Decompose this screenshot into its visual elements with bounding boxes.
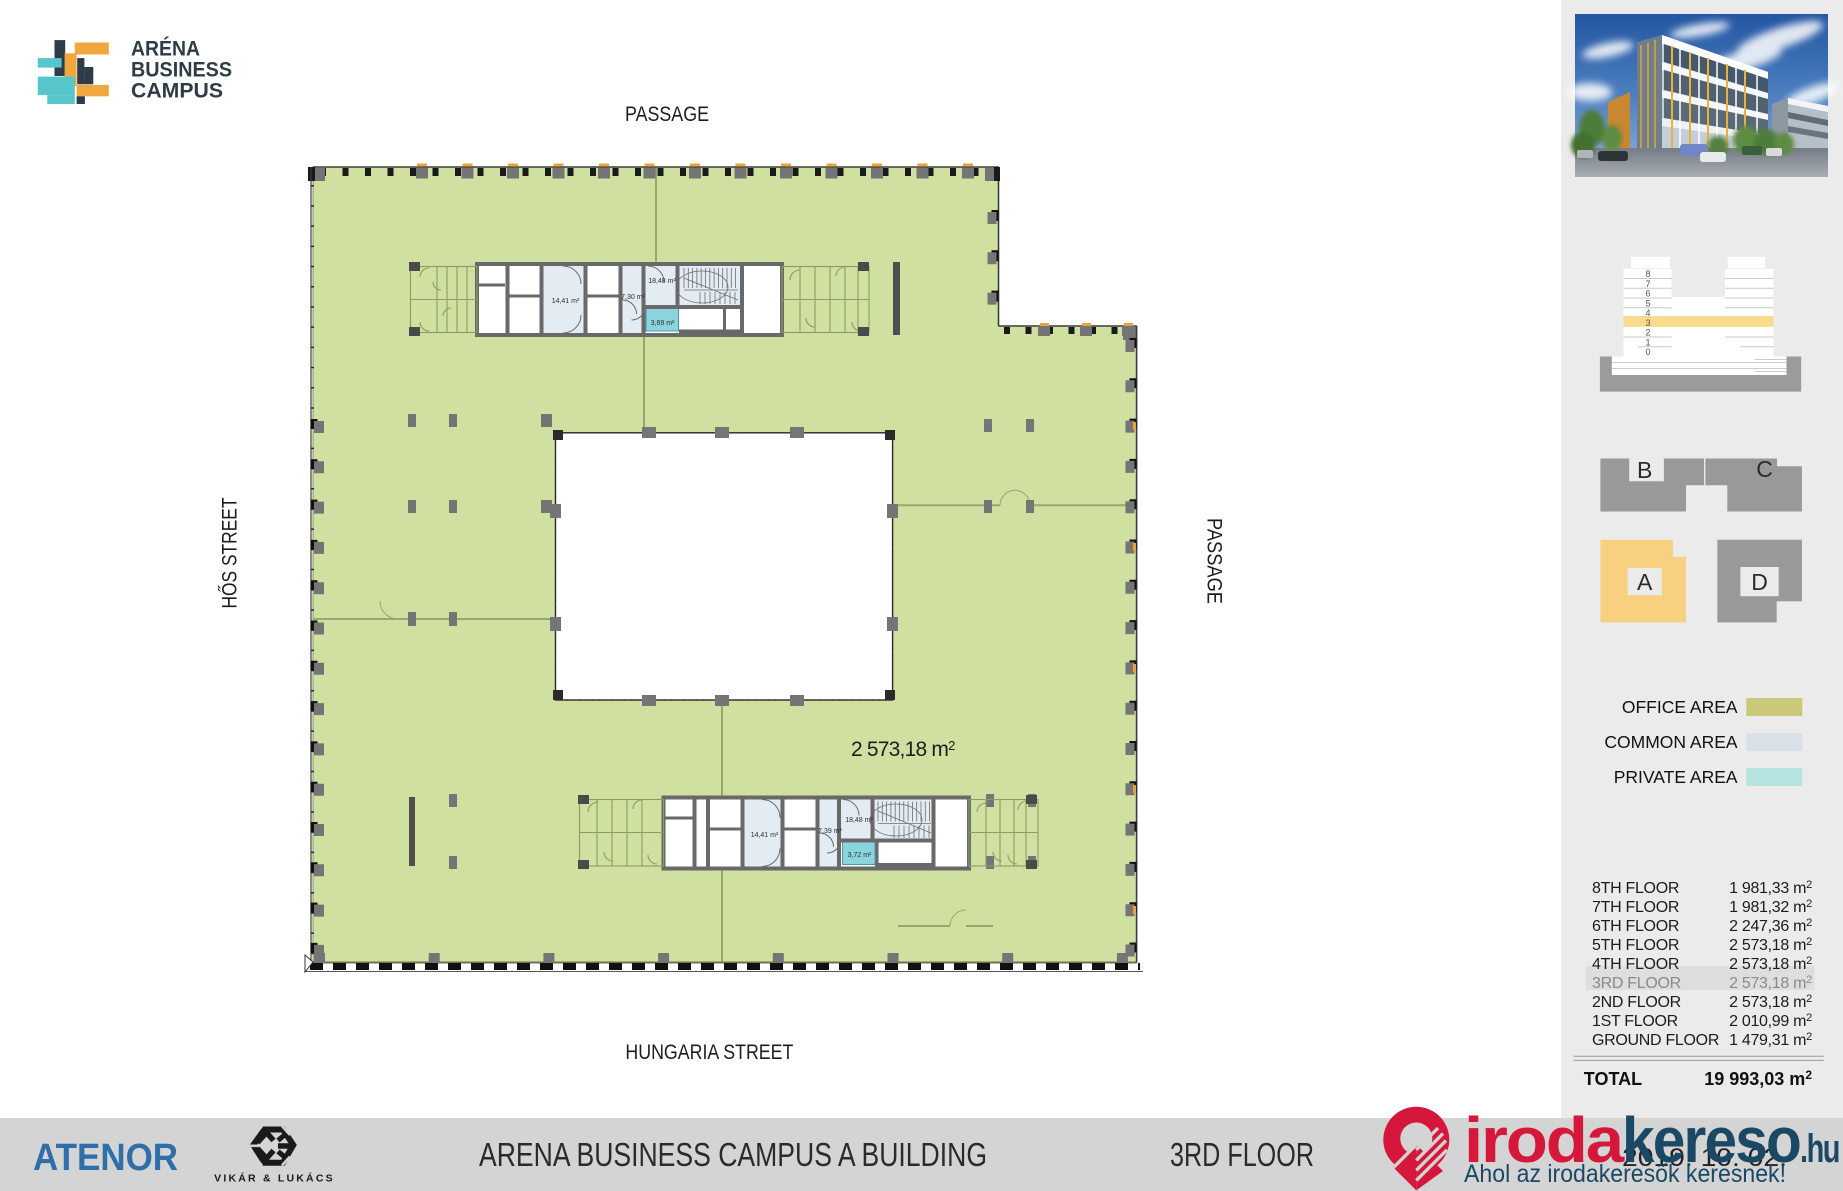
svg-text:2 573,18 m2: 2 573,18 m2: [1729, 955, 1812, 973]
svg-text:HUNGARIA STREET: HUNGARIA STREET: [625, 1041, 793, 1064]
svg-text:ATENOR: ATENOR: [33, 1137, 178, 1179]
svg-text:8: 8: [1645, 269, 1650, 279]
svg-text:3: 3: [1645, 318, 1650, 328]
svg-text:19 993,03 m2: 19 993,03 m2: [1704, 1068, 1812, 1089]
svg-text:3RD FLOOR: 3RD FLOOR: [1170, 1136, 1314, 1173]
svg-text:B: B: [1637, 457, 1652, 483]
svg-text:7,39 m²: 7,39 m²: [818, 828, 842, 835]
svg-text:3,72 m²: 3,72 m²: [848, 852, 872, 859]
svg-text:VIKÁR & LUKÁCS: VIKÁR & LUKÁCS: [214, 1172, 335, 1185]
svg-text:3RD FLOOR: 3RD FLOOR: [1592, 975, 1681, 992]
svg-text:CAMPUS: CAMPUS: [131, 80, 223, 103]
svg-text:14,41 m²: 14,41 m²: [751, 832, 779, 839]
svg-text:2 573,18 m2: 2 573,18 m2: [851, 738, 955, 761]
svg-text:2 010,99 m2: 2 010,99 m2: [1729, 1012, 1812, 1030]
svg-text:2 573,18 m2: 2 573,18 m2: [1729, 974, 1812, 992]
svg-text:2 247,36 m2: 2 247,36 m2: [1729, 917, 1812, 935]
svg-text:14,41 m²: 14,41 m²: [552, 298, 580, 305]
svg-text:A: A: [1637, 569, 1653, 595]
svg-text:5TH FLOOR: 5TH FLOOR: [1592, 937, 1679, 954]
svg-text:4: 4: [1645, 308, 1650, 318]
svg-text:ARENA BUSINESS CAMPUS A BUILDI: ARENA BUSINESS CAMPUS A BUILDING: [479, 1136, 987, 1173]
svg-text:6: 6: [1645, 289, 1650, 299]
svg-text:7: 7: [1645, 279, 1650, 289]
svg-text:18,48 m²: 18,48 m²: [648, 278, 676, 285]
svg-text:3,69 m²: 3,69 m²: [651, 320, 675, 327]
svg-text:1 981,32 m2: 1 981,32 m2: [1729, 898, 1812, 916]
svg-text:TOTAL: TOTAL: [1584, 1069, 1642, 1089]
svg-text:5: 5: [1645, 298, 1650, 308]
svg-text:GROUND FLOOR: GROUND FLOOR: [1592, 1032, 1719, 1049]
svg-text:6TH FLOOR: 6TH FLOOR: [1592, 918, 1679, 935]
svg-text:HŐS STREET: HŐS STREET: [219, 497, 242, 608]
svg-text:7,30 m²: 7,30 m²: [621, 294, 645, 301]
svg-text:PASSAGE: PASSAGE: [1203, 518, 1226, 604]
svg-text:1 479,31 m2: 1 479,31 m2: [1729, 1031, 1812, 1049]
svg-text:2: 2: [1645, 328, 1650, 338]
svg-text:1ST FLOOR: 1ST FLOOR: [1592, 1013, 1678, 1030]
svg-text:COMMON AREA: COMMON AREA: [1604, 732, 1738, 752]
svg-text:7TH FLOOR: 7TH FLOOR: [1592, 899, 1679, 916]
svg-text:2ND FLOOR: 2ND FLOOR: [1592, 994, 1681, 1011]
svg-text:18,48 m²: 18,48 m²: [845, 817, 873, 824]
svg-text:OFFICE AREA: OFFICE AREA: [1622, 697, 1738, 717]
svg-text:4TH FLOOR: 4TH FLOOR: [1592, 956, 1679, 973]
svg-text:C: C: [1756, 456, 1773, 482]
svg-text:ARÉNA: ARÉNA: [131, 38, 200, 61]
svg-text:Ahol az irodakeresők keresnek!: Ahol az irodakeresők keresnek!: [1464, 1160, 1786, 1188]
svg-text:PRIVATE AREA: PRIVATE AREA: [1614, 767, 1738, 787]
svg-text:1 981,33 m2: 1 981,33 m2: [1729, 879, 1812, 897]
svg-text:8TH FLOOR: 8TH FLOOR: [1592, 880, 1679, 897]
svg-text:2 573,18 m2: 2 573,18 m2: [1729, 993, 1812, 1011]
svg-text:0: 0: [1645, 347, 1650, 357]
svg-text:2 573,18 m2: 2 573,18 m2: [1729, 936, 1812, 954]
svg-text:1: 1: [1645, 337, 1650, 347]
svg-text:PASSAGE: PASSAGE: [625, 103, 709, 126]
svg-text:D: D: [1751, 569, 1768, 595]
svg-text:BUSINESS: BUSINESS: [131, 59, 232, 82]
